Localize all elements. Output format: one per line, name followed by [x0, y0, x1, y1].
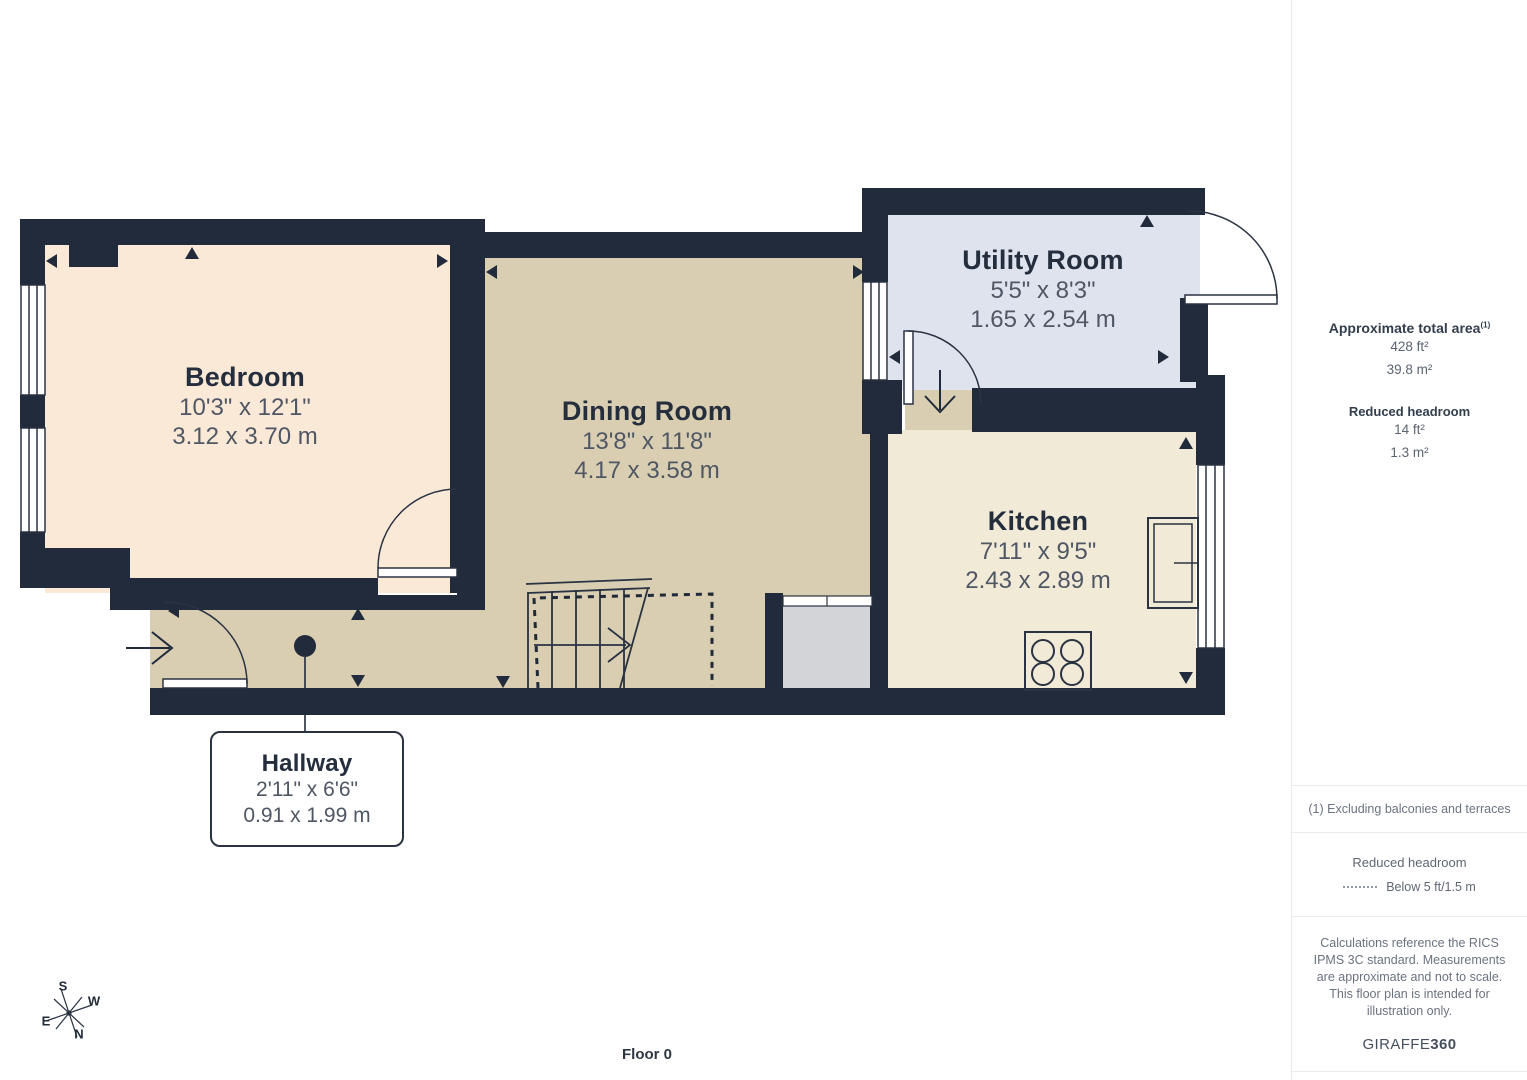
compass-west-label: W — [88, 994, 100, 1009]
disclaimer-text: Calculations reference the RICS IPMS 3C … — [1312, 935, 1508, 1019]
compass-north-label: N — [74, 1027, 83, 1042]
reduced-headroom-imperial: 14 ft² — [1394, 419, 1425, 442]
compass-rose-icon — [46, 989, 92, 1037]
bedroom-window-lower — [21, 428, 45, 532]
kitchen-window — [1198, 465, 1224, 648]
room-name: Hallway — [262, 750, 353, 778]
compass-south-label: S — [59, 979, 68, 994]
info-sidebar: Approximate total area(1) 428 ft² 39.8 m… — [1291, 0, 1527, 1080]
reduced-headroom-metric: 1.3 m² — [1390, 442, 1428, 465]
total-area-title: Approximate total area(1) — [1329, 320, 1491, 336]
dashed-line-icon — [1343, 886, 1377, 888]
total-area-section: Approximate total area(1) 428 ft² 39.8 m… — [1292, 0, 1527, 785]
footnote-marker: (1) — [1480, 320, 1490, 329]
total-area-metric: 39.8 m² — [1387, 359, 1433, 382]
reduced-headroom-title: Reduced headroom — [1349, 404, 1470, 419]
kitchen-floor — [888, 430, 1196, 690]
dining-utility-window — [863, 282, 887, 380]
bedroom-floor — [45, 245, 450, 593]
compass-east-label: E — [42, 1014, 51, 1029]
cupboard — [783, 603, 872, 688]
room-dim-imperial: 2'11" x 6'6" — [256, 777, 358, 803]
legend-entry: Below 5 ft/1.5 m — [1386, 880, 1476, 894]
room-floors — [45, 215, 1200, 690]
legend-title: Reduced headroom — [1352, 855, 1466, 870]
brand-logo: GIRAFFE360 — [1362, 1036, 1456, 1053]
cupboard-front — [783, 596, 872, 606]
disclaimer-section: Calculations reference the RICS IPMS 3C … — [1292, 917, 1527, 1072]
legend-section: Reduced headroom Below 5 ft/1.5 m — [1292, 833, 1527, 917]
footnote-section: (1) Excluding balconies and terraces — [1292, 785, 1527, 833]
floorplan-page: Bedroom 10'3" x 12'1" 3.12 x 3.70 m Dini… — [0, 0, 1527, 1080]
footnote-text: (1) Excluding balconies and terraces — [1308, 802, 1510, 816]
bedroom-window-upper — [21, 285, 45, 395]
floor-label: Floor 0 — [622, 1046, 672, 1063]
hallway-callout: Hallway 2'11" x 6'6" 0.91 x 1.99 m — [210, 731, 404, 847]
total-area-imperial: 428 ft² — [1390, 336, 1428, 359]
utility-room-floor — [888, 215, 1200, 390]
floorplan-canvas — [0, 0, 1290, 1080]
room-dim-metric: 0.91 x 1.99 m — [243, 803, 370, 829]
